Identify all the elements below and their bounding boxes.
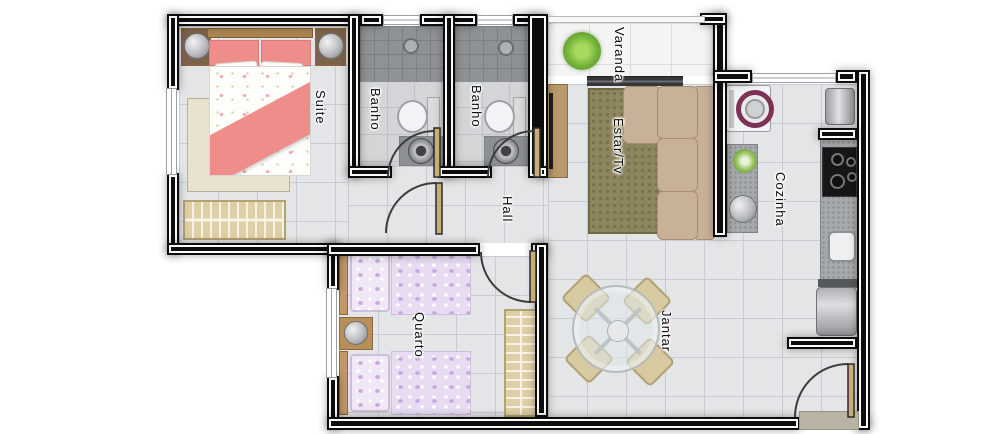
window-suite (166, 88, 177, 175)
sofa-seat-2 (657, 138, 698, 192)
double-bed (207, 28, 313, 178)
banho2-shower-head-icon (498, 40, 514, 56)
suite-wardrobe (183, 200, 286, 240)
headboard (207, 28, 313, 38)
wall-suite-left-upper (167, 14, 179, 90)
counter-divider (818, 279, 857, 287)
label-jantar: Jantar (659, 310, 674, 352)
quarto-wardrobe (504, 309, 538, 417)
lamp-right-icon (318, 33, 344, 59)
wall-quarto-top (327, 243, 480, 256)
label-estar: Estar/Tv (611, 118, 626, 174)
banho1-shower (360, 26, 443, 82)
wall-banho-bottom-3 (538, 166, 548, 178)
banho2-shower (455, 26, 528, 82)
label-varanda: Varanda (612, 27, 627, 82)
wall-quarto-jantar (535, 243, 548, 417)
sofa-seat-3 (657, 191, 698, 240)
banho1-shower-head-icon (403, 38, 419, 54)
wall-varanda-estar-cozinha (713, 13, 727, 237)
coral-throw (209, 66, 311, 176)
banho2-toilet (484, 100, 515, 133)
bed-cover (391, 351, 471, 415)
tv-icon (549, 93, 553, 169)
wall-banho-bottom-2 (438, 166, 492, 178)
bed-cover (391, 249, 471, 315)
banho1-toilet-tank (427, 97, 440, 137)
corner-sofa (623, 86, 713, 238)
quarto-lamp-icon (344, 321, 368, 345)
refrigerator (816, 287, 857, 336)
single-bed-top (339, 249, 471, 315)
single-bed-bottom (339, 351, 471, 415)
banho1-toilet (397, 100, 428, 133)
window-banho1 (383, 15, 420, 25)
wall-banho-bottom-1 (348, 166, 392, 178)
wall-banho2-varanda (528, 14, 548, 178)
floor-plan: Suite Banho Banho Varanda Estar/Tv Cozin… (0, 0, 1000, 434)
sofa-seat-1 (657, 86, 698, 139)
window-cozinha (752, 73, 836, 83)
varanda-parapet (548, 16, 705, 23)
wall-cozinha-entry-stub (787, 337, 857, 349)
window-banho2 (477, 15, 513, 25)
wall-banho-top-1 (360, 14, 383, 26)
counter-plant-icon (733, 149, 757, 173)
bed-pillow (350, 354, 390, 412)
label-banho2: Banho (469, 85, 484, 128)
wall-bottom (327, 417, 800, 430)
washing-machine (726, 85, 771, 132)
wall-suite-banho1 (348, 14, 360, 178)
burner-4 (847, 172, 857, 182)
cooktop (822, 147, 857, 197)
window-quarto (326, 288, 337, 378)
wall-cozinha-top-2 (836, 70, 857, 83)
varanda-plant-icon (563, 32, 601, 70)
bed-headboard (339, 351, 348, 415)
bed-cover (209, 66, 311, 176)
wall-suite-top (167, 14, 360, 26)
banho2-basin-icon (493, 138, 519, 164)
laundry-tank (825, 88, 855, 125)
washer-panel (729, 90, 734, 128)
dining-table (572, 285, 660, 373)
burner-3 (830, 174, 845, 189)
washer-agitator (745, 99, 765, 119)
wall-banho1-banho2 (443, 14, 455, 178)
wall-right (857, 70, 870, 430)
label-banho1: Banho (368, 88, 383, 131)
label-cozinha: Cozinha (773, 172, 788, 227)
burner-2 (846, 157, 856, 167)
bed-headboard (339, 249, 348, 315)
wall-cozinha-top-1 (713, 70, 752, 83)
table-hub (607, 320, 629, 342)
bed-pillow (350, 252, 390, 312)
label-suite: Suite (313, 90, 328, 125)
washer-drum-icon (736, 90, 774, 128)
label-quarto: Quarto (412, 312, 427, 358)
counter-basin-icon (729, 195, 757, 223)
sliding-door (587, 76, 683, 86)
burner-1 (831, 153, 844, 166)
banho1-basin-icon (408, 138, 434, 164)
kitchen-sink (828, 231, 856, 262)
label-hall: Hall (500, 196, 515, 222)
wall-suite-bottom (167, 243, 340, 255)
sofa-armrest (623, 86, 661, 144)
wall-tank-nook (818, 128, 857, 140)
entry-doormat (799, 411, 859, 430)
